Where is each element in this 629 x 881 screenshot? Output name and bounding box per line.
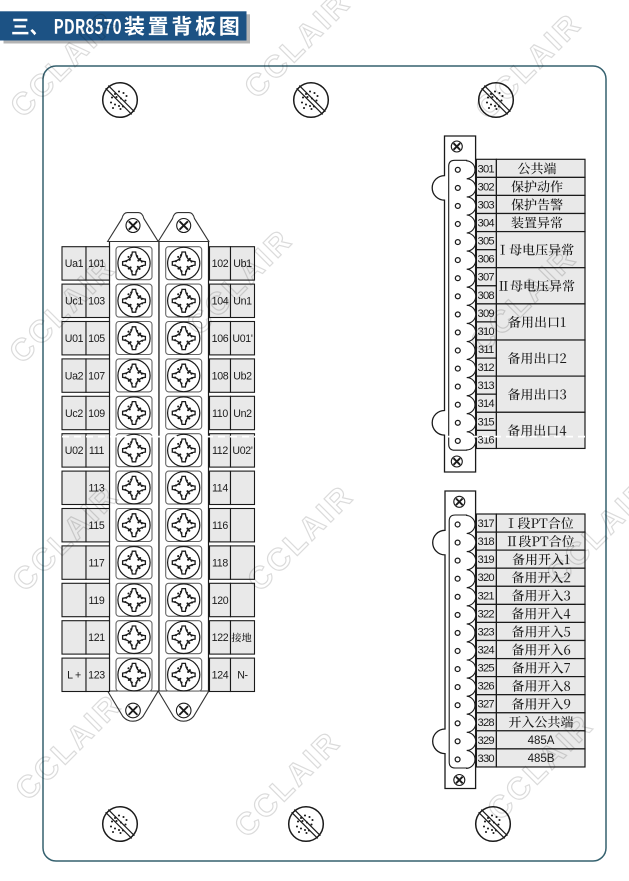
svg-text:107: 107 (88, 370, 105, 382)
svg-text:315: 315 (478, 416, 495, 428)
svg-text:328: 328 (478, 717, 495, 729)
svg-text:301: 301 (478, 163, 495, 175)
svg-text:Ua2: Ua2 (65, 370, 84, 382)
svg-text:U02: U02 (65, 445, 84, 457)
svg-text:121: 121 (88, 632, 105, 644)
svg-text:102: 102 (212, 258, 229, 270)
svg-text:330: 330 (478, 753, 495, 765)
svg-text:119: 119 (89, 595, 105, 607)
svg-text:323: 323 (478, 626, 495, 638)
svg-text:319: 319 (478, 554, 495, 566)
svg-text:105: 105 (88, 333, 105, 345)
svg-text:321: 321 (478, 590, 495, 602)
svg-text:Ub2: Ub2 (233, 370, 252, 382)
svg-text:108: 108 (212, 370, 229, 382)
svg-text:326: 326 (478, 681, 495, 693)
svg-text:U01: U01 (65, 333, 84, 345)
svg-text:117: 117 (89, 557, 105, 569)
svg-text:317: 317 (478, 518, 495, 530)
svg-text:306: 306 (478, 254, 495, 266)
svg-text:U01': U01' (232, 333, 253, 345)
svg-text:325: 325 (478, 663, 495, 675)
svg-text:U02': U02' (232, 445, 253, 457)
svg-text:303: 303 (478, 199, 495, 211)
svg-text:123: 123 (88, 670, 105, 682)
svg-text:324: 324 (478, 645, 495, 657)
svg-text:111: 111 (89, 445, 105, 457)
svg-text:320: 320 (478, 572, 495, 584)
svg-text:Uc2: Uc2 (65, 408, 83, 420)
svg-text:118: 118 (212, 557, 228, 569)
svg-text:329: 329 (478, 735, 495, 747)
svg-text:N-: N- (237, 670, 248, 682)
svg-text:304: 304 (478, 218, 495, 230)
svg-text:106: 106 (212, 333, 229, 345)
svg-text:327: 327 (478, 699, 495, 711)
svg-text:112: 112 (212, 445, 228, 457)
svg-text:314: 314 (478, 398, 495, 410)
svg-text:Un2: Un2 (233, 408, 252, 420)
svg-text:312: 312 (478, 362, 495, 374)
svg-text:124: 124 (212, 670, 229, 682)
svg-text:116: 116 (212, 520, 228, 532)
svg-text:322: 322 (478, 608, 495, 620)
svg-text:305: 305 (478, 236, 495, 248)
svg-text:302: 302 (478, 181, 495, 193)
svg-text:114: 114 (212, 483, 228, 495)
svg-text:308: 308 (478, 290, 495, 302)
svg-text:L +: L + (67, 670, 81, 682)
svg-text:318: 318 (478, 536, 495, 548)
svg-text:120: 120 (212, 595, 229, 607)
svg-text:110: 110 (212, 408, 228, 420)
svg-text:109: 109 (88, 408, 105, 420)
svg-text:313: 313 (478, 380, 495, 392)
svg-text:307: 307 (478, 272, 495, 284)
svg-text:122: 122 (212, 632, 229, 644)
